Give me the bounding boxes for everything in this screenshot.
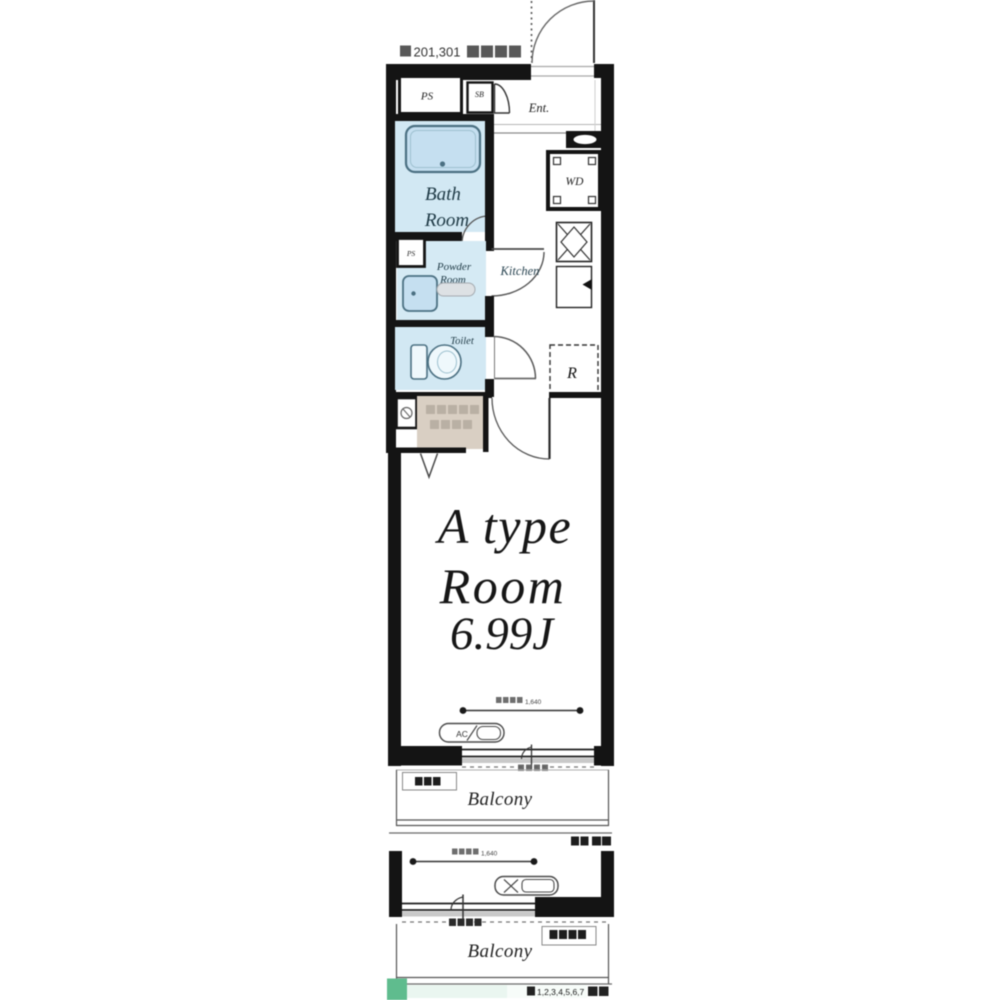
svg-text:PS: PS [420, 91, 434, 103]
svg-text:Toilet: Toilet [450, 336, 475, 347]
svg-text:AC: AC [456, 729, 468, 739]
svg-text:1,640: 1,640 [525, 699, 542, 706]
svg-text:Balcony: Balcony [467, 789, 532, 810]
svg-text:Room: Room [424, 210, 469, 231]
svg-text:201,301: 201,301 [414, 45, 461, 60]
svg-text:Ent.: Ent. [528, 101, 549, 115]
svg-text:Kitchen: Kitchen [500, 264, 540, 278]
svg-text:SB: SB [475, 90, 484, 99]
svg-text:1,640: 1,640 [481, 851, 498, 858]
svg-text:6.99J: 6.99J [450, 608, 555, 660]
svg-text:PS: PS [406, 249, 416, 258]
svg-text:1,2,3,4,5,6,7: 1,2,3,4,5,6,7 [537, 987, 585, 997]
svg-text:Room: Room [439, 558, 567, 614]
svg-text:R: R [566, 365, 577, 382]
svg-text:Powder: Powder [436, 261, 472, 273]
svg-text:A type: A type [435, 498, 572, 554]
svg-text:Bath: Bath [425, 184, 461, 205]
svg-text:Balcony: Balcony [467, 941, 532, 962]
svg-text:WD: WD [566, 176, 585, 188]
